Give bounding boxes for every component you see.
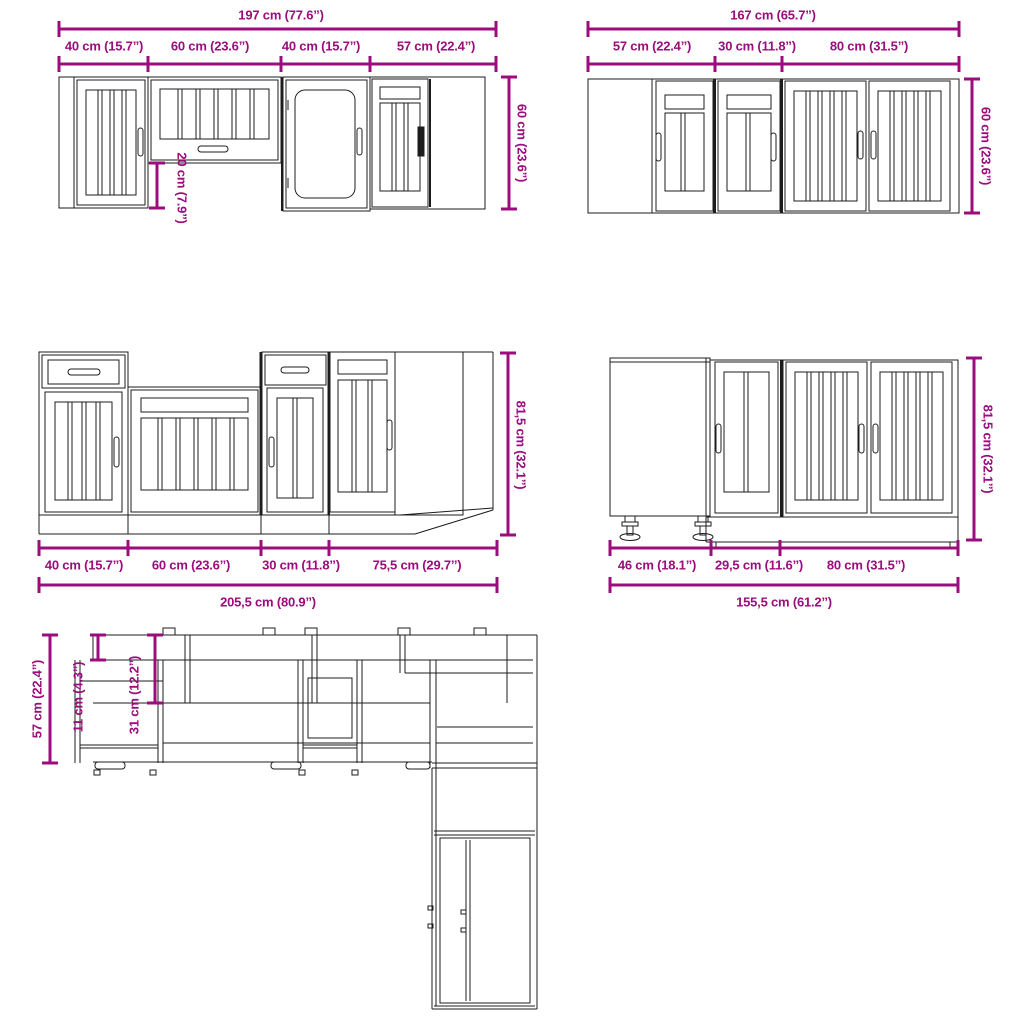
door-handle xyxy=(859,424,864,453)
door-handle xyxy=(858,131,863,159)
plan-view-drawing xyxy=(75,628,537,1009)
dim-label-a-total: 197 cm (77.6’’) xyxy=(238,8,323,23)
dim-a-total xyxy=(59,21,496,37)
dim-label-e-wall-depth: 31 cm (12.2’’) xyxy=(127,656,142,734)
dim-label-a-seg4: 57 cm (22.4’’) xyxy=(397,39,475,54)
dim-label-c-seg4: 75,5 cm (29.7’’) xyxy=(373,558,462,573)
dim-label-d-total: 155,5 cm (61.2’’) xyxy=(736,595,832,610)
door-handle xyxy=(461,928,466,932)
dim-e-wall-depth xyxy=(147,635,163,703)
door-handle xyxy=(114,437,119,467)
dim-b-segments xyxy=(588,56,959,72)
door-handle xyxy=(357,128,362,155)
dim-label-a-height: 60 cm (23.6’’) xyxy=(515,104,530,182)
drawer-handle xyxy=(95,762,125,769)
dim-b-total xyxy=(588,21,959,37)
dim-e-top-depth xyxy=(90,635,106,660)
drawer-handle xyxy=(271,762,301,769)
dim-c-segments xyxy=(39,540,497,556)
dim-label-c-seg1: 40 cm (15.7’’) xyxy=(45,558,123,573)
dim-label-a-seg3: 40 cm (15.7’’) xyxy=(282,39,360,54)
base-run-a-drawing xyxy=(39,352,493,534)
wall-run-a-drawing xyxy=(59,77,485,211)
dim-label-a-seg2: 60 cm (23.6’’) xyxy=(171,39,249,54)
door-handle xyxy=(387,420,392,450)
door-handle xyxy=(461,910,466,914)
dim-label-d-height: 81,5 cm (32.1’’) xyxy=(981,405,996,494)
dim-label-e-top-depth: 11 cm (4.3’’) xyxy=(71,662,86,733)
door-handle xyxy=(198,146,228,152)
door-handle xyxy=(656,133,661,161)
dim-a-hob-gap xyxy=(149,163,165,208)
glass-panel xyxy=(295,90,355,198)
dim-label-c-seg3: 30 cm (11.8’’) xyxy=(262,558,340,573)
dim-label-e-counter-depth: 57 cm (22.4’’) xyxy=(30,660,45,738)
dim-label-c-seg2: 60 cm (23.6’’) xyxy=(152,558,230,573)
door-handle xyxy=(716,424,721,453)
wall-run-b-drawing xyxy=(588,79,959,213)
dim-label-a-seg1: 40 cm (15.7’’) xyxy=(65,39,143,54)
dim-d-total xyxy=(610,577,958,593)
dim-label-b-seg3: 80 cm (31.5’’) xyxy=(830,39,908,54)
line-art-canvas xyxy=(0,0,1024,1024)
cabinet-dimension-diagram: 197 cm (77.6’’) 40 cm (15.7’’) 60 cm (23… xyxy=(0,0,1024,1024)
door-handle xyxy=(269,437,274,467)
door-handle xyxy=(138,128,143,156)
dim-label-d-seg1: 46 cm (18.1’’) xyxy=(618,558,696,573)
dim-label-a-hob-gap: 20 cm (7.9’’) xyxy=(175,152,190,223)
door-handle xyxy=(418,127,424,156)
drawer-handle xyxy=(68,369,100,375)
dim-label-b-total: 167 cm (65.7’’) xyxy=(730,8,815,23)
dim-label-d-seg2: 29,5 cm (11.6’’) xyxy=(715,558,803,573)
adjustable-foot xyxy=(620,516,640,541)
dim-label-b-seg2: 30 cm (11.8’’) xyxy=(718,39,796,54)
dim-label-c-total: 205,5 cm (80.9’’) xyxy=(220,595,316,610)
drawer-handle xyxy=(281,367,309,373)
door-handle xyxy=(871,131,876,159)
dim-label-b-height: 60 cm (23.6’’) xyxy=(979,107,994,185)
adjustable-foot xyxy=(693,516,713,541)
dim-c-total xyxy=(39,577,497,593)
base-run-b-drawing xyxy=(610,358,958,548)
dimension-lines xyxy=(39,21,982,763)
door-handle xyxy=(771,133,776,161)
dim-a-segments xyxy=(59,56,496,72)
door-handle xyxy=(873,424,878,453)
dim-label-d-seg3: 80 cm (31.5’’) xyxy=(827,558,905,573)
drawer-handle xyxy=(406,762,430,769)
dim-label-b-seg1: 57 cm (22.4’’) xyxy=(613,39,691,54)
dim-label-c-height: 81,5 cm (32.1’’) xyxy=(514,401,529,490)
